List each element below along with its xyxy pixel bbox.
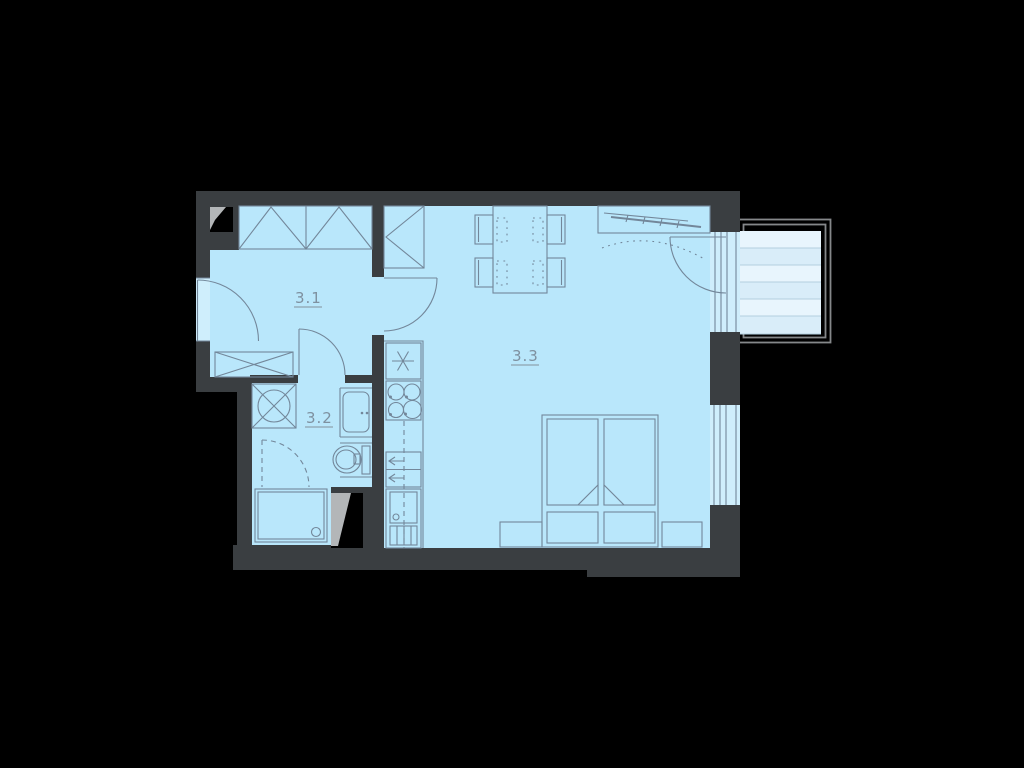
balcony-icon [739,220,831,343]
room-label-3-2: 3.2 [306,409,333,427]
shower-alcove-floor [252,487,331,545]
floor-plan-canvas: 3.1 3.2 3.3 [0,0,1024,768]
room-label-3-1: 3.1 [295,289,322,307]
wall-west-upper [196,206,210,278]
wall-west-step [196,377,252,392]
duct-shaft-icon-bottom [331,493,363,548]
wall-bath-north-east [345,375,372,383]
wall-east-upper [710,191,740,232]
apartment-floor-plan: 3.1 3.2 3.3 [0,0,1024,768]
wall-east-lower [710,505,740,577]
wall-hall-east-upper [372,206,384,277]
room-label-3-3: 3.3 [512,347,539,365]
wall-south [233,545,740,577]
duct-shaft-icon-topleft [210,207,233,232]
wall-west-mid [196,341,210,377]
wall-east-mid [710,332,740,405]
wall-north [196,191,740,206]
wall-bath-west [237,392,252,562]
